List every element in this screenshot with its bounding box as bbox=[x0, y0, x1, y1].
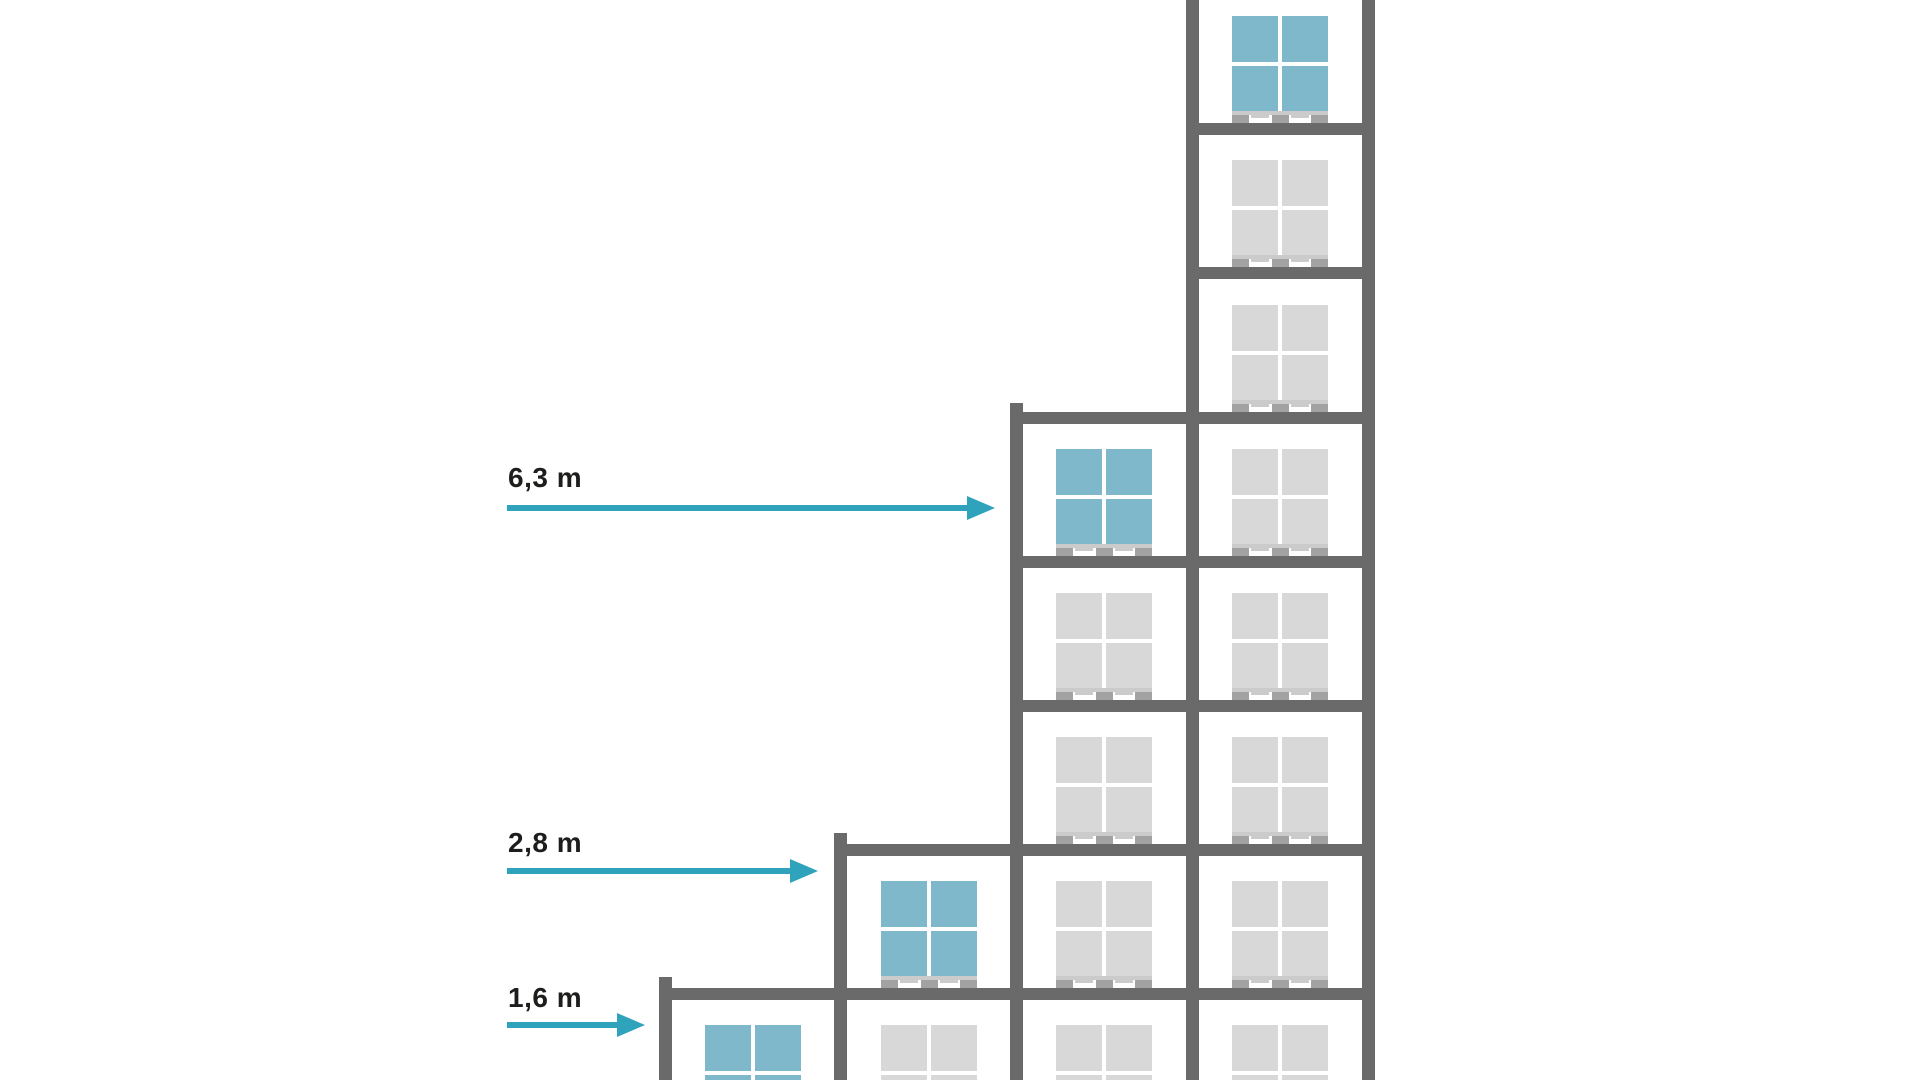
carton-box bbox=[1232, 1025, 1328, 1080]
carton-quadrant bbox=[1282, 593, 1328, 639]
carton-box bbox=[1056, 881, 1152, 976]
height-label: 2,8 m bbox=[508, 829, 582, 857]
rack-post bbox=[659, 977, 672, 1080]
pallet-foot bbox=[1096, 692, 1113, 700]
pallet-stringer-dash bbox=[1291, 980, 1309, 983]
pallet-foot bbox=[1311, 980, 1328, 988]
carton-quadrant bbox=[1232, 1025, 1278, 1071]
pallet-foot bbox=[1056, 980, 1073, 988]
pallet-stringer-dash bbox=[1291, 548, 1309, 551]
pallet-load bbox=[1056, 737, 1152, 844]
pallet-base bbox=[1232, 400, 1328, 412]
carton-quadrant bbox=[1056, 499, 1102, 545]
pallet-foot bbox=[1096, 980, 1113, 988]
carton-quadrant bbox=[1282, 355, 1328, 401]
carton-quadrant bbox=[1232, 499, 1278, 545]
carton-box bbox=[881, 1025, 977, 1080]
pallet-stringer-dash bbox=[1291, 404, 1309, 407]
pallet-stringer-dash bbox=[1115, 692, 1133, 695]
pallet-stringer-dash bbox=[1291, 692, 1309, 695]
pallet-stringer-dash bbox=[1115, 548, 1133, 551]
pallet-stringer-dash bbox=[1251, 692, 1269, 695]
pallet-load bbox=[881, 881, 977, 988]
pallet-load bbox=[1232, 1025, 1328, 1080]
shelf-beam bbox=[834, 844, 1375, 856]
carton-quadrant bbox=[1106, 1075, 1152, 1080]
pallet-rack-height-diagram: 6,3 m2,8 m1,6 m bbox=[0, 0, 1920, 1080]
pallet-foot bbox=[1311, 259, 1328, 267]
carton-quadrant bbox=[1282, 16, 1328, 62]
pallet-foot bbox=[921, 980, 938, 988]
pallet-stringer-dash bbox=[1115, 836, 1133, 839]
carton-quadrant bbox=[1232, 787, 1278, 833]
pallet-foot bbox=[1311, 115, 1328, 123]
carton-box bbox=[1232, 737, 1328, 832]
pallet-foot bbox=[1056, 548, 1073, 556]
height-label: 6,3 m bbox=[508, 464, 582, 492]
shelf-beam bbox=[1186, 123, 1375, 135]
pallet-foot bbox=[1232, 692, 1249, 700]
carton-quadrant bbox=[1106, 737, 1152, 783]
pallet-foot bbox=[1311, 692, 1328, 700]
carton-quadrant bbox=[1232, 160, 1278, 206]
pallet-base bbox=[1232, 688, 1328, 700]
pallet-foot bbox=[1272, 548, 1289, 556]
carton-quadrant bbox=[755, 1025, 801, 1071]
pallet-load bbox=[1056, 1025, 1152, 1080]
pallet-foot bbox=[1232, 259, 1249, 267]
carton-quadrant bbox=[1106, 499, 1152, 545]
pallet-stringer-dash bbox=[1251, 259, 1269, 262]
carton-quadrant bbox=[1232, 305, 1278, 351]
pallet-stringer-dash bbox=[1251, 115, 1269, 118]
height-label-text: 1,6 m bbox=[508, 982, 582, 1013]
carton-quadrant bbox=[1282, 737, 1328, 783]
pallet-foot bbox=[1311, 548, 1328, 556]
carton-box bbox=[1232, 305, 1328, 400]
pallet-load bbox=[1232, 16, 1328, 123]
rack-post bbox=[834, 833, 847, 1080]
carton-quadrant bbox=[881, 881, 927, 927]
carton-quadrant bbox=[1232, 210, 1278, 256]
carton-quadrant bbox=[1282, 499, 1328, 545]
pallet-base bbox=[1232, 832, 1328, 844]
carton-quadrant bbox=[1282, 66, 1328, 112]
height-label-text: 6,3 m bbox=[508, 462, 582, 493]
height-arrow-line bbox=[507, 868, 794, 874]
pallet-stringer-dash bbox=[1075, 836, 1093, 839]
pallet-foot bbox=[1272, 115, 1289, 123]
carton-quadrant bbox=[881, 1075, 927, 1080]
carton-quadrant bbox=[1282, 305, 1328, 351]
pallet-load bbox=[881, 1025, 977, 1080]
pallet-load bbox=[1056, 593, 1152, 700]
pallet-foot bbox=[1272, 980, 1289, 988]
arrowhead-icon bbox=[617, 1013, 645, 1037]
carton-box-highlighted bbox=[1056, 449, 1152, 544]
rack-post bbox=[1186, 0, 1199, 1080]
pallet-foot bbox=[1056, 692, 1073, 700]
pallet-stringer-dash bbox=[1115, 980, 1133, 983]
pallet-stringer-dash bbox=[1291, 836, 1309, 839]
pallet-load bbox=[1232, 160, 1328, 267]
pallet-load bbox=[1232, 881, 1328, 988]
carton-quadrant bbox=[1056, 1075, 1102, 1080]
carton-quadrant bbox=[1282, 881, 1328, 927]
carton-quadrant bbox=[1106, 931, 1152, 977]
carton-quadrant bbox=[1232, 449, 1278, 495]
pallet-base bbox=[1232, 976, 1328, 988]
pallet-foot bbox=[1096, 548, 1113, 556]
carton-box bbox=[1056, 1025, 1152, 1080]
pallet-foot bbox=[1272, 692, 1289, 700]
carton-quadrant bbox=[755, 1075, 801, 1080]
pallet-foot bbox=[1135, 692, 1152, 700]
rack-post bbox=[1362, 0, 1375, 1080]
pallet-base bbox=[1232, 255, 1328, 267]
pallet-foot bbox=[1096, 836, 1113, 844]
carton-quadrant bbox=[1232, 66, 1278, 112]
carton-quadrant bbox=[931, 1075, 977, 1080]
carton-quadrant bbox=[1282, 449, 1328, 495]
carton-quadrant bbox=[1232, 355, 1278, 401]
pallet-load bbox=[1056, 449, 1152, 556]
carton-quadrant bbox=[931, 881, 977, 927]
carton-quadrant bbox=[1056, 931, 1102, 977]
pallet-base bbox=[1056, 544, 1152, 556]
carton-quadrant bbox=[1232, 1075, 1278, 1080]
pallet-base bbox=[1056, 688, 1152, 700]
carton-quadrant bbox=[1232, 931, 1278, 977]
pallet-foot bbox=[1311, 404, 1328, 412]
pallet-foot bbox=[1272, 404, 1289, 412]
pallet-base bbox=[881, 976, 977, 988]
carton-box bbox=[1232, 881, 1328, 976]
height-arrow-line bbox=[507, 1022, 621, 1028]
carton-box-highlighted bbox=[705, 1025, 801, 1080]
pallet-foot bbox=[960, 980, 977, 988]
pallet-stringer-dash bbox=[1291, 115, 1309, 118]
pallet-load bbox=[1232, 593, 1328, 700]
height-label-text: 2,8 m bbox=[508, 827, 582, 858]
carton-box bbox=[1056, 593, 1152, 688]
carton-box bbox=[1056, 737, 1152, 832]
pallet-foot bbox=[1232, 404, 1249, 412]
carton-quadrant bbox=[1056, 1025, 1102, 1071]
pallet-foot bbox=[1232, 548, 1249, 556]
carton-quadrant bbox=[881, 931, 927, 977]
arrowhead-icon bbox=[790, 859, 818, 883]
carton-quadrant bbox=[1232, 881, 1278, 927]
carton-quadrant bbox=[1282, 160, 1328, 206]
pallet-foot bbox=[1056, 836, 1073, 844]
pallet-load bbox=[705, 1025, 801, 1080]
carton-quadrant bbox=[1232, 593, 1278, 639]
pallet-foot bbox=[1135, 548, 1152, 556]
carton-quadrant bbox=[1056, 643, 1102, 689]
pallet-stringer-dash bbox=[1291, 259, 1309, 262]
pallet-stringer-dash bbox=[1251, 980, 1269, 983]
pallet-foot bbox=[1232, 980, 1249, 988]
rack-post bbox=[1010, 403, 1023, 1080]
pallet-load bbox=[1056, 881, 1152, 988]
pallet-base bbox=[1056, 976, 1152, 988]
pallet-stringer-dash bbox=[1075, 548, 1093, 551]
carton-quadrant bbox=[1106, 881, 1152, 927]
pallet-foot bbox=[1272, 259, 1289, 267]
carton-quadrant bbox=[705, 1025, 751, 1071]
pallet-foot bbox=[1232, 115, 1249, 123]
carton-quadrant bbox=[1282, 643, 1328, 689]
carton-quadrant bbox=[1282, 1075, 1328, 1080]
carton-box bbox=[1232, 449, 1328, 544]
carton-quadrant bbox=[1106, 787, 1152, 833]
pallet-base bbox=[1232, 111, 1328, 123]
carton-quadrant bbox=[1282, 210, 1328, 256]
pallet-load bbox=[1232, 737, 1328, 844]
carton-quadrant bbox=[1282, 931, 1328, 977]
pallet-stringer-dash bbox=[1251, 836, 1269, 839]
carton-quadrant bbox=[1056, 737, 1102, 783]
pallet-foot bbox=[1232, 836, 1249, 844]
pallet-foot bbox=[1135, 980, 1152, 988]
carton-quadrant bbox=[705, 1075, 751, 1080]
pallet-stringer-dash bbox=[1251, 548, 1269, 551]
pallet-stringer-dash bbox=[1075, 980, 1093, 983]
carton-quadrant bbox=[1106, 449, 1152, 495]
carton-box-highlighted bbox=[881, 881, 977, 976]
height-label: 1,6 m bbox=[508, 984, 582, 1012]
pallet-stringer-dash bbox=[900, 980, 918, 983]
carton-quadrant bbox=[1232, 16, 1278, 62]
carton-quadrant bbox=[1282, 787, 1328, 833]
pallet-load bbox=[1232, 305, 1328, 412]
arrowhead-icon bbox=[967, 496, 995, 520]
carton-quadrant bbox=[1232, 643, 1278, 689]
pallet-stringer-dash bbox=[1075, 692, 1093, 695]
carton-quadrant bbox=[1056, 593, 1102, 639]
carton-quadrant bbox=[1056, 787, 1102, 833]
carton-quadrant bbox=[1106, 1025, 1152, 1071]
carton-quadrant bbox=[931, 931, 977, 977]
pallet-stringer-dash bbox=[940, 980, 958, 983]
carton-quadrant bbox=[1232, 737, 1278, 783]
carton-box bbox=[1232, 160, 1328, 255]
pallet-foot bbox=[1311, 836, 1328, 844]
carton-quadrant bbox=[1282, 1025, 1328, 1071]
carton-quadrant bbox=[931, 1025, 977, 1071]
pallet-base bbox=[1056, 832, 1152, 844]
carton-quadrant bbox=[1056, 881, 1102, 927]
height-arrow-line bbox=[507, 505, 971, 511]
pallet-foot bbox=[1272, 836, 1289, 844]
carton-quadrant bbox=[1106, 643, 1152, 689]
carton-quadrant bbox=[1056, 449, 1102, 495]
pallet-foot bbox=[881, 980, 898, 988]
shelf-beam bbox=[1186, 267, 1375, 279]
carton-box-highlighted bbox=[1232, 16, 1328, 111]
carton-quadrant bbox=[881, 1025, 927, 1071]
pallet-load bbox=[1232, 449, 1328, 556]
carton-quadrant bbox=[1106, 593, 1152, 639]
pallet-foot bbox=[1135, 836, 1152, 844]
carton-box bbox=[1232, 593, 1328, 688]
pallet-base bbox=[1232, 544, 1328, 556]
pallet-stringer-dash bbox=[1251, 404, 1269, 407]
